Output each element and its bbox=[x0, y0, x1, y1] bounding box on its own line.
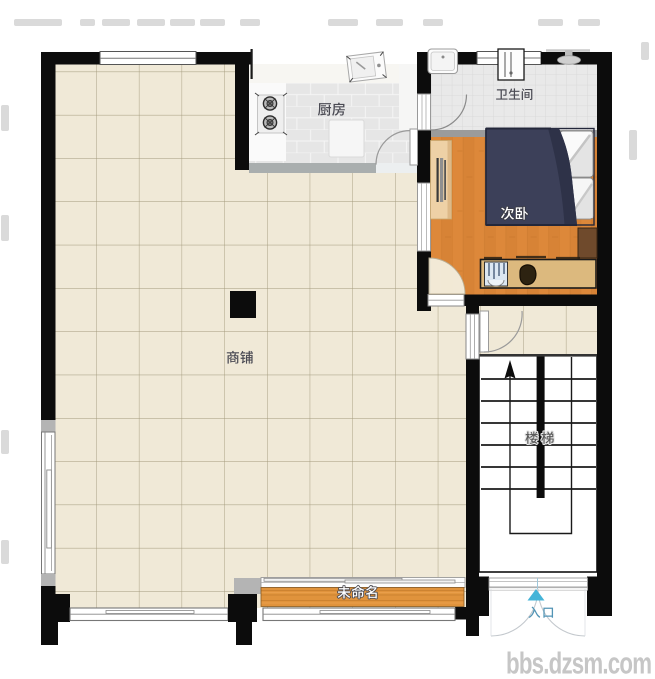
svg-text:bbs.dzsm.com: bbs.dzsm.com bbox=[506, 646, 652, 679]
